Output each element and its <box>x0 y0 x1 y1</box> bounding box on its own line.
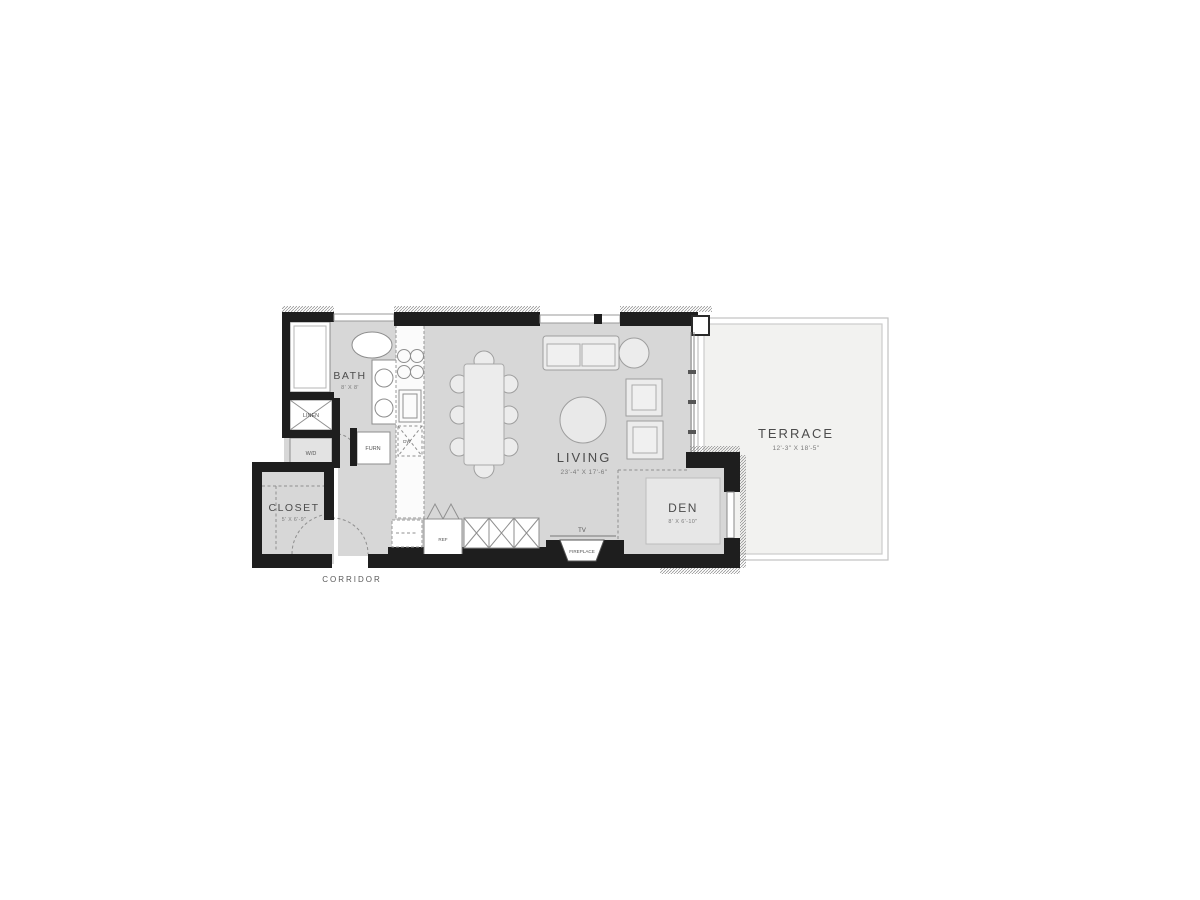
room-label-den: DEN <box>668 501 698 515</box>
wall-den-top <box>686 452 740 468</box>
sink-icon <box>375 399 393 417</box>
window-living <box>540 315 620 323</box>
room-dims-den: 8' X 6'-10" <box>668 519 697 525</box>
wall-den-right-upper <box>724 466 740 492</box>
window-mullion <box>594 314 602 324</box>
refrigerator-label: REF <box>438 537 447 542</box>
glass-wall-mullion <box>688 400 696 404</box>
room-dims-terrace: 12'-3" X 18'-5" <box>772 445 819 452</box>
room-label-closet: CLOSET <box>268 502 319 514</box>
dining-table <box>464 364 504 465</box>
sofa-cushion <box>582 344 615 366</box>
room-label-corridor: CORRIDOR <box>322 575 382 584</box>
armchair-cushion <box>632 385 656 410</box>
room-label-terrace: TERRACE <box>758 426 834 441</box>
washer-dryer-label: W/D <box>306 451 317 457</box>
wall-left-bath <box>282 312 290 434</box>
wall-bottom-main <box>368 554 546 568</box>
bathtub <box>352 332 392 358</box>
room-dims-living: 23'-4" X 17'-6" <box>560 469 607 476</box>
sofa-cushion <box>547 344 580 366</box>
room-dims-bath: 8' X 8' <box>341 385 359 391</box>
linen-label: LINEN <box>303 413 319 419</box>
floor-plan-drawing: TERRACE 12'-3" X 18'-5" BATH 8' X 8' LIN… <box>0 0 1200 900</box>
armchair-cushion <box>633 427 657 453</box>
wall-closet-right <box>324 462 334 520</box>
wall-closet-top <box>252 462 334 472</box>
wall-top-living <box>620 312 698 326</box>
sink-icon <box>375 369 393 387</box>
fireplace-label: FIREPLACE <box>569 549 595 554</box>
kitchen: DW <box>396 324 424 518</box>
wall-bottom-den <box>624 554 740 568</box>
room-label-bath: BATH <box>333 370 366 382</box>
floor-plan-page: TERRACE 12'-3" X 18'-5" BATH 8' X 8' LIN… <box>0 0 1200 900</box>
room-dims-closet: 5' X 6'-9" <box>282 517 307 523</box>
wall-closet-left <box>252 462 262 568</box>
coffee-table <box>560 397 606 443</box>
shower <box>290 322 330 392</box>
corner-column <box>692 316 709 335</box>
glass-wall-terrace <box>691 332 694 453</box>
wall-closet-bottom <box>252 554 332 568</box>
room-label-living: LIVING <box>557 450 612 465</box>
side-table <box>619 338 649 368</box>
window-bath <box>334 314 394 321</box>
glass-wall-mullion <box>688 430 696 434</box>
tv-label: TV <box>578 528 586 534</box>
den-glass-door <box>727 492 734 538</box>
furnace-label: FURN <box>365 446 380 452</box>
dishwasher-label: DW <box>403 439 411 444</box>
glass-wall-mullion <box>688 370 696 374</box>
wall-top-kitchen <box>394 312 540 326</box>
